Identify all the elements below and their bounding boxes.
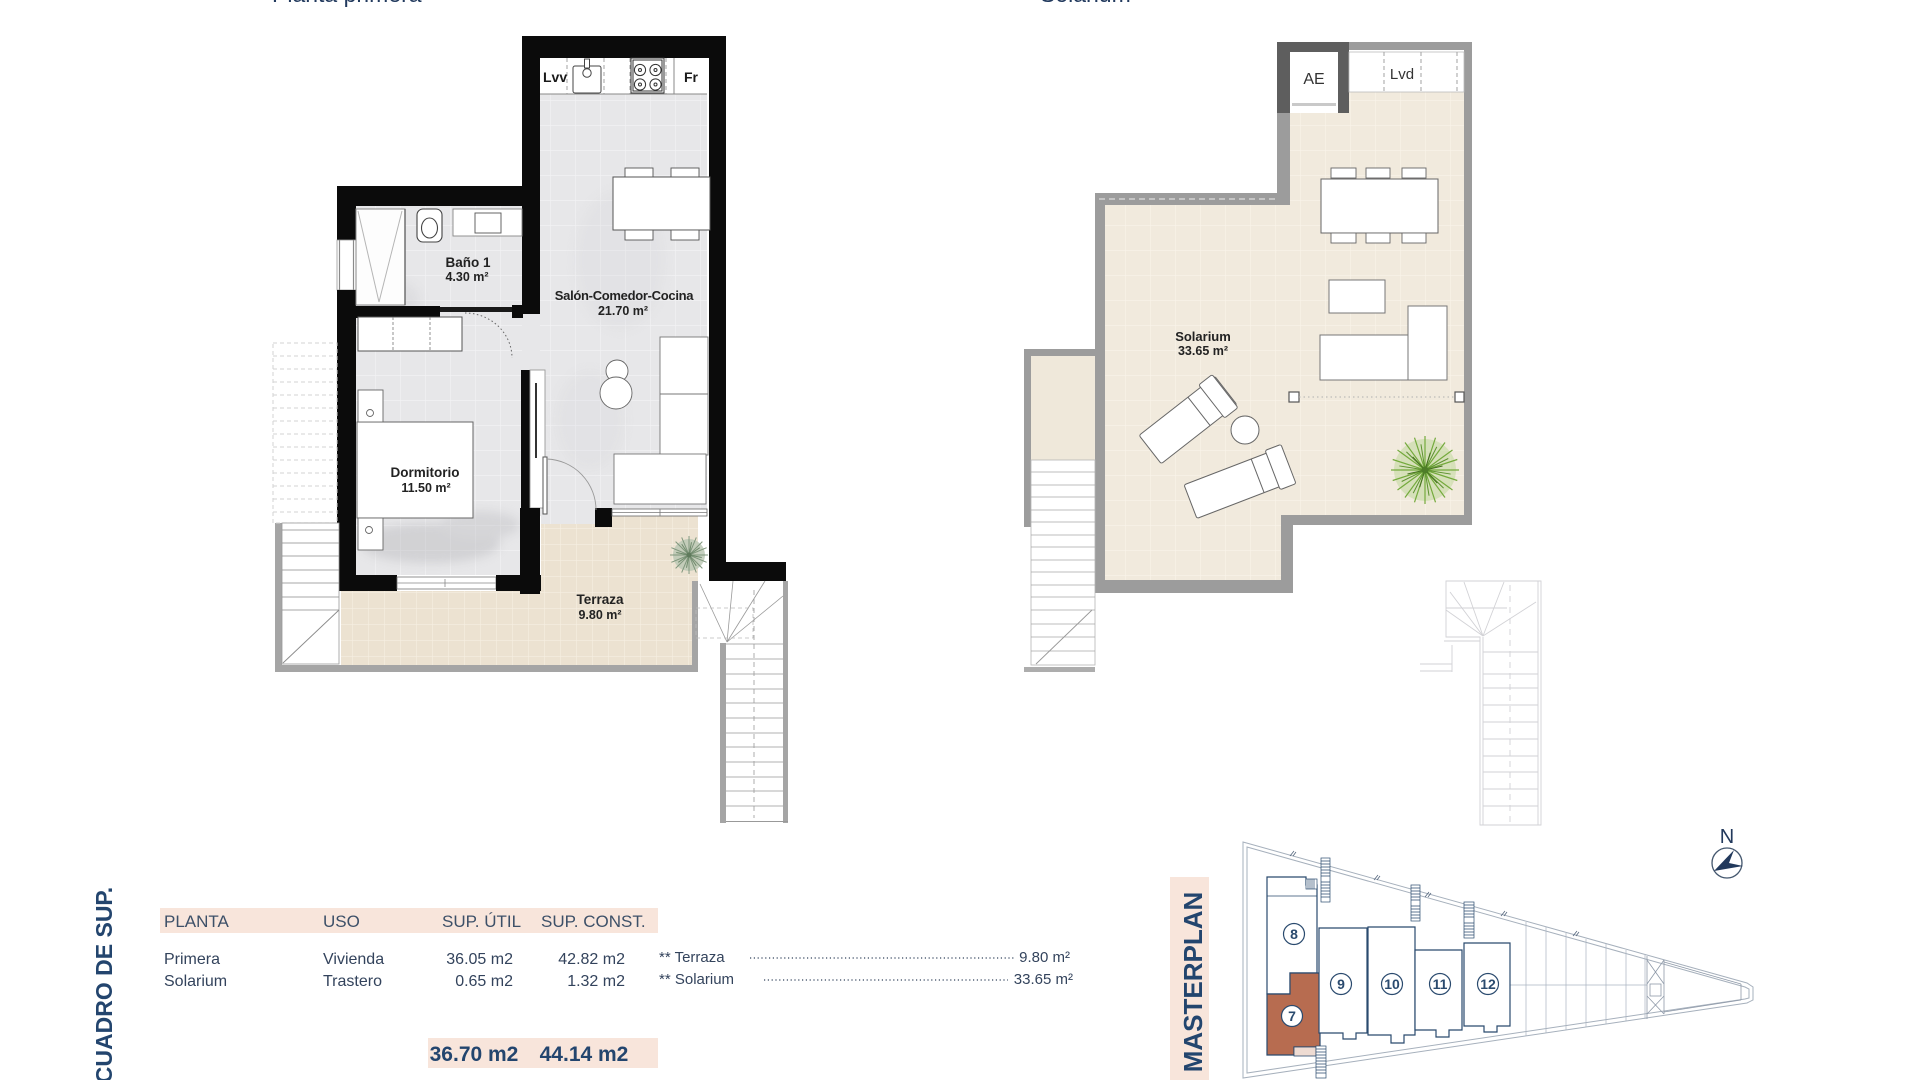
svg-text:MASTERPLAN: MASTERPLAN [1178,892,1208,1073]
svg-text:Dormitorio: Dormitorio [391,465,460,480]
svg-text:36.05 m2: 36.05 m2 [446,951,513,968]
svg-text:Solarium: Solarium [164,973,227,990]
svg-text:11: 11 [1433,976,1448,992]
svg-text:8: 8 [1290,926,1298,942]
svg-text:Planta primera: Planta primera [272,0,422,7]
svg-text:0.65 m2: 0.65 m2 [455,973,513,990]
svg-text:AE: AE [1303,71,1324,88]
svg-text:Primera: Primera [164,951,220,968]
svg-text:9: 9 [1337,976,1345,992]
svg-text:SUP. CONST.: SUP. CONST. [541,912,646,931]
svg-text:Lvd: Lvd [1390,66,1414,83]
svg-text:Salón-Comedor-Cocina: Salón-Comedor-Cocina [555,288,695,303]
svg-text:SUP. ÚTIL: SUP. ÚTIL [442,912,521,931]
svg-text:9.80 m²: 9.80 m² [578,608,621,622]
svg-text:4.30 m²: 4.30 m² [445,270,488,284]
svg-text:11.50 m²: 11.50 m² [401,481,450,495]
svg-text:33.65 m²: 33.65 m² [1014,971,1073,988]
svg-text:Solarium: Solarium [1040,0,1131,7]
svg-text:21.70 m²: 21.70 m² [598,304,648,318]
svg-text:12: 12 [1480,976,1496,992]
svg-text:Baño 1: Baño 1 [445,255,491,270]
svg-text:Trastero: Trastero [323,973,382,990]
svg-text:Vivienda: Vivienda [323,951,384,968]
svg-text:** Terraza: ** Terraza [659,949,725,966]
svg-text:N: N [1720,826,1734,848]
svg-text:36.70 m2: 36.70 m2 [430,1043,519,1066]
svg-text:1.32 m2: 1.32 m2 [567,973,625,990]
svg-text:CUADRO DE SUP.: CUADRO DE SUP. [91,887,117,1080]
svg-text:Terraza: Terraza [576,592,624,607]
svg-text:9.80 m²: 9.80 m² [1019,949,1070,966]
svg-text:USO: USO [323,912,360,931]
svg-text:PLANTA: PLANTA [164,912,230,931]
svg-text:42.82 m2: 42.82 m2 [558,951,625,968]
svg-text:Fr: Fr [684,69,699,85]
svg-text:Solarium: Solarium [1175,329,1231,344]
svg-text:7: 7 [1288,1008,1296,1024]
svg-text:33.65 m²: 33.65 m² [1178,344,1228,358]
svg-text:10: 10 [1384,976,1400,992]
svg-text:Lvv: Lvv [543,69,567,85]
svg-text:44.14 m2: 44.14 m2 [540,1043,629,1066]
svg-text:** Solarium: ** Solarium [659,971,734,988]
